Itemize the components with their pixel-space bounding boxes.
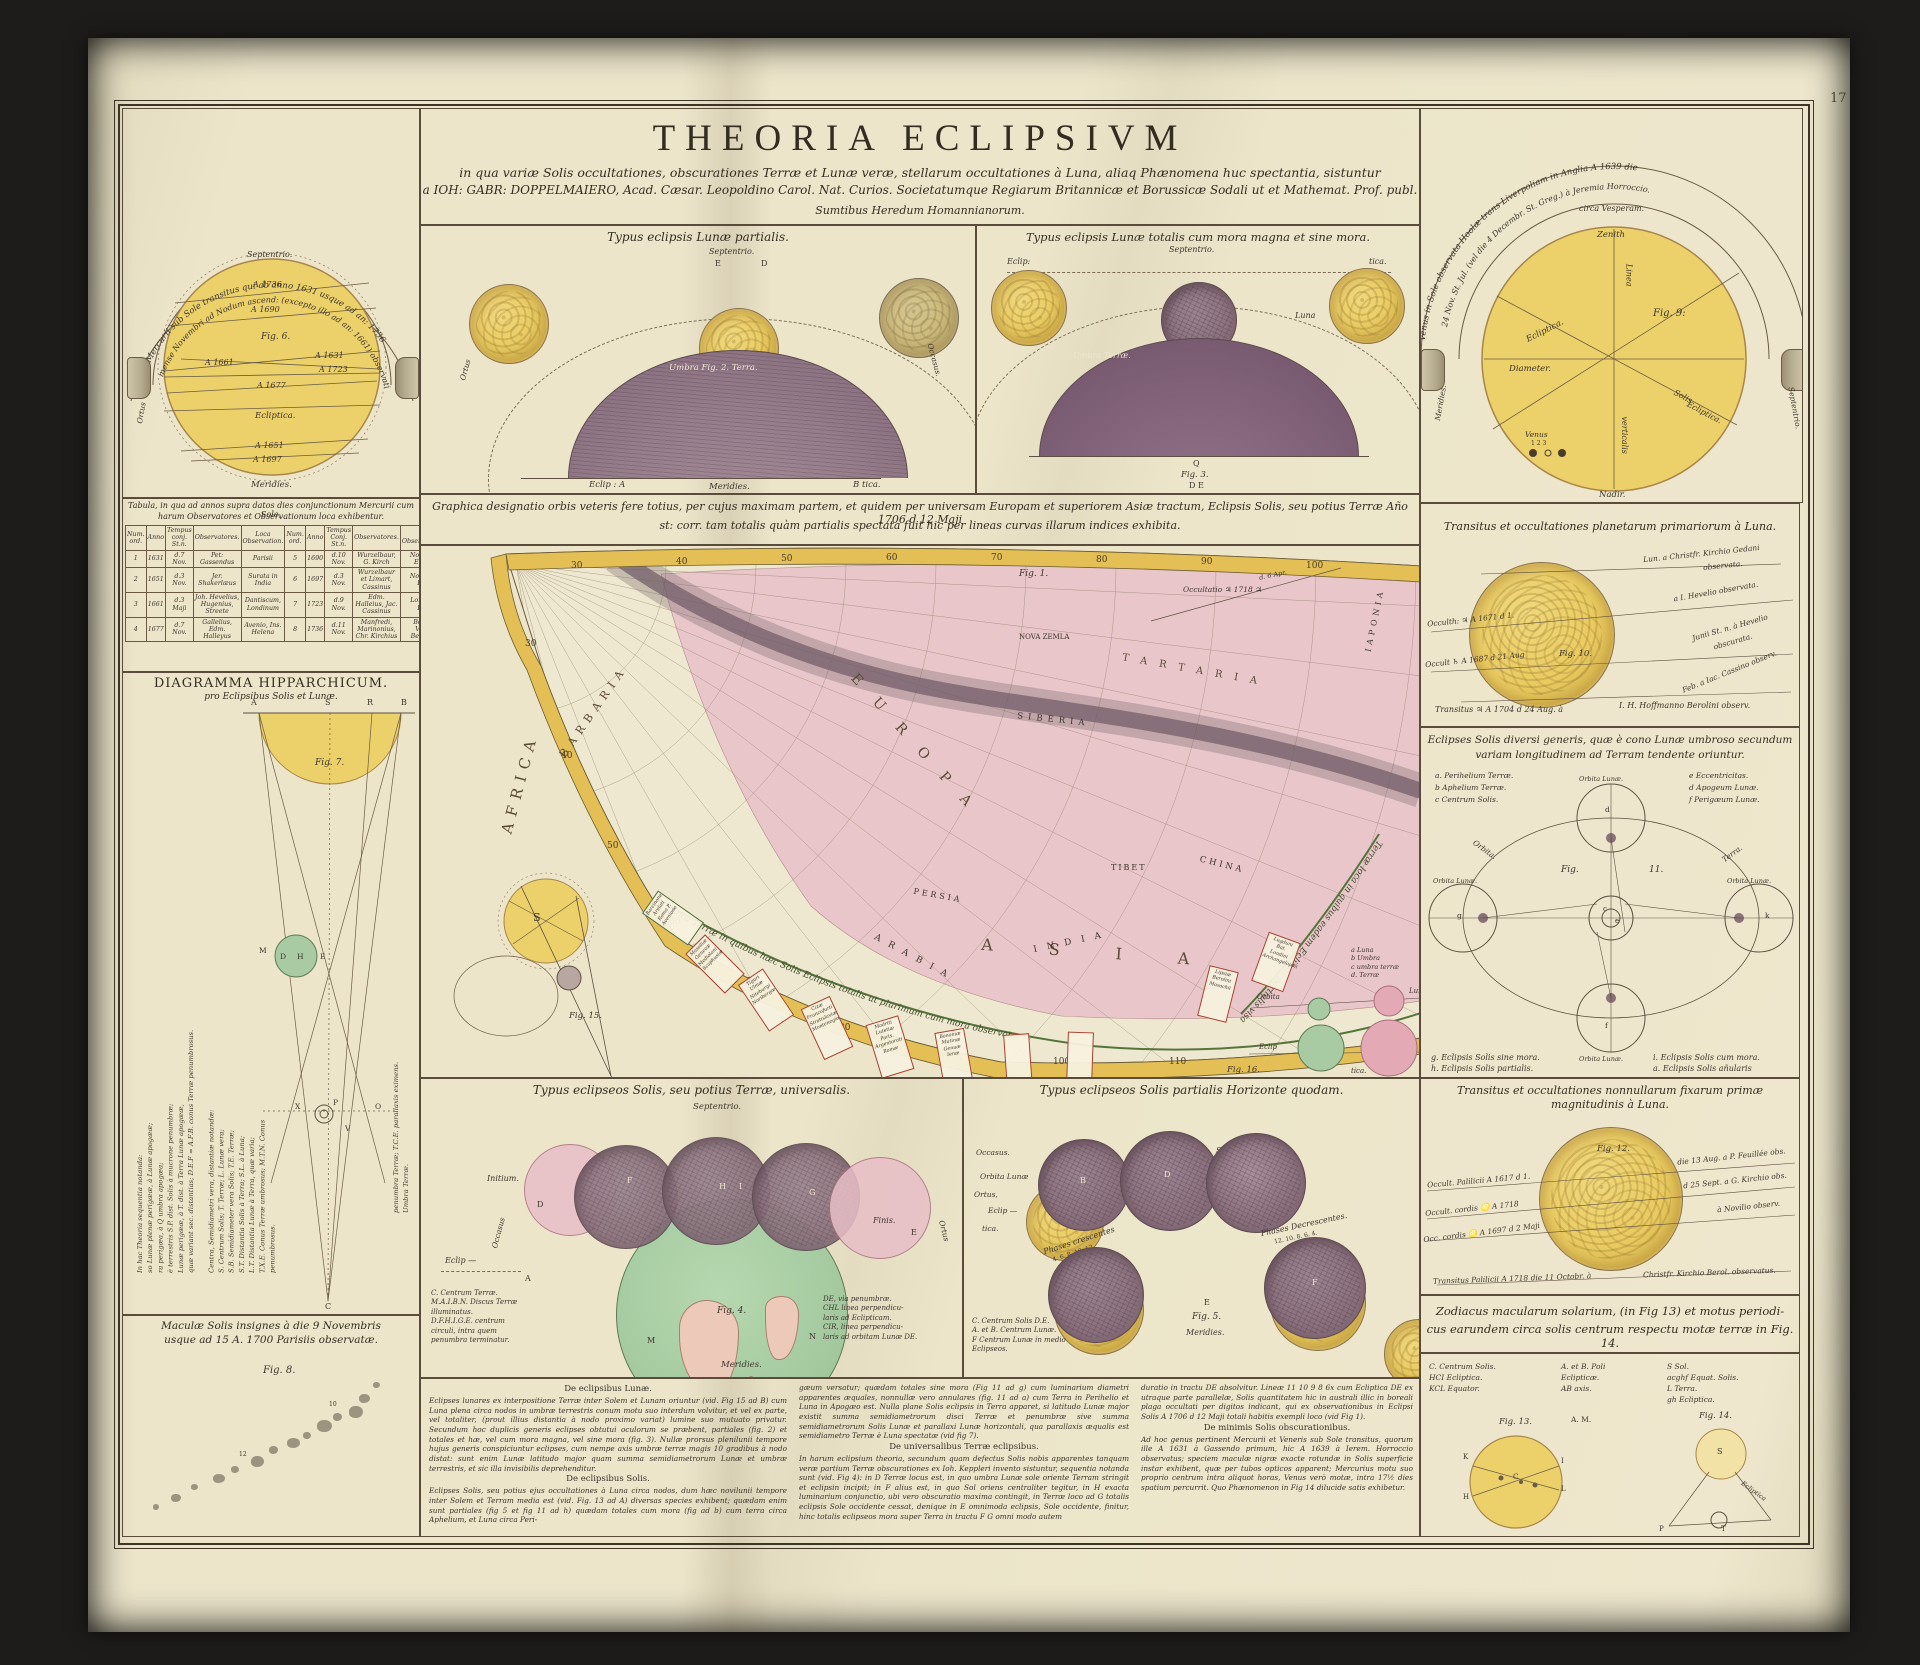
svg-text:90: 90 [1201,557,1213,567]
table-cell: 1736 [305,617,324,642]
plate-title: THEORIA ECLIPSIVM [421,117,1419,160]
label-d: D [280,953,286,961]
label-e: E [320,953,325,961]
star-paths [1421,1079,1800,1295]
table-cell: Londinum, Parisii [400,592,420,617]
map-occultation-note: Occultatio ♃ 1718 ♃ [1183,586,1262,594]
sunspot [251,1456,264,1467]
map-label-s: S [533,912,541,924]
svg-text:50: 50 [781,554,793,564]
label-venus: Venus [1525,431,1548,439]
city-box-empty [1003,1033,1033,1078]
table-cell: Wurzelbaur, G. Kirch [353,550,401,567]
svg-text:50: 50 [607,841,619,851]
label-fig6: Fig. 6. [261,333,290,342]
label-fig: Fig. [1561,866,1579,875]
label-d: D [1164,1171,1170,1179]
table-row: 21651d.3 Nov.Jer. ShakerlæusSurata in In… [126,568,421,593]
table-cell: d.3 Maji [166,592,194,617]
table-cell: Jer. Shakerlæus [193,568,241,593]
label-tica: tica. [1351,1068,1366,1075]
svg-text:30: 30 [571,561,583,571]
sunspot [231,1466,239,1473]
table-cell: 1690 [305,550,324,567]
table-caption-2: harum Observatores et Observationum loca… [123,512,419,521]
sunspot [303,1432,311,1439]
label-fig12: Fig. 12. [1597,1145,1630,1154]
table-cell: Manfredi, Marinonius, Chr. Kirchius [353,617,401,642]
label-s: S [325,699,330,707]
panel-lunar-partial: Typus eclipsis Lunæ partialis. Septentri… [420,225,976,494]
universal-legend-2: DE, via penumbræ. CHL linea perpendicu- … [823,1295,917,1342]
label-orbita-lunae: Orbita Lunæ. [1433,878,1477,885]
table-cell: 1631 [146,550,165,567]
label-h: H [719,1183,726,1191]
sunspot [213,1474,225,1483]
label-a1736: A 1736 [253,281,282,289]
label-meridies: Meridies. [251,481,292,490]
table-cell: 1677 [146,617,165,642]
label-h: H [1463,1494,1469,1501]
svg-text:30: 30 [525,639,537,649]
banner-scroll-right-icon [395,357,419,399]
map-caption-2: st: corr. tam totalis quàm partialis spe… [421,519,1419,532]
lunar-partial-header: Typus eclipsis Lunæ partialis. [421,230,975,244]
label-orbita-lunae: Orbita Lunæ. [1727,878,1771,885]
label-a1631: A 1631 [315,352,344,360]
col-header: Num. ord. [285,526,306,551]
label-meridies: Meridies. [709,483,750,492]
label-orbita-lunae: Orbita Lunæ. [1579,1056,1623,1063]
svg-text:40: 40 [676,557,688,567]
ecliptic-dashes [1007,272,1391,273]
map-label-tibet: TIBET [1111,864,1147,872]
panel-planet-occultations: Transitus et occultationes planetarum pr… [1420,503,1800,727]
moon-disc [991,270,1067,346]
label-linea: Linea [1624,264,1632,287]
sunspot [287,1438,300,1448]
table-cell: Noriberga, Parisii [400,568,420,593]
plate-imprint: Sumtibus Heredum Homannianorum. [421,204,1419,217]
banner-scroll-left-icon [127,357,151,399]
label-eclip-a: Eclip : A [589,481,625,490]
ecliptic-line [441,1271,521,1272]
heading-de-minimis: De minimis Solis obscurationibus. [1141,1423,1413,1434]
table-cell: d.7 Nov. [166,550,194,567]
label-f: F [1312,1279,1318,1287]
conjunction-table: Num. ord. Anno Tempus conj. St.n. Observ… [125,525,420,642]
label-k: K [1463,1454,1468,1461]
label-c: c [1603,906,1607,913]
label-de: D E [1189,482,1204,490]
panel-solar-eclipse-types: Eclipses Solis diversi generis, quæ è co… [1420,727,1800,1078]
heading-de-eclipsibus-solis: De eclipsibus Solis. [429,1474,787,1485]
label-l: L [1561,1486,1566,1493]
label-b: B [1080,1177,1086,1185]
col-header: Observatores. [353,526,401,551]
label-septentrio: Septentrio. [693,1103,741,1112]
label-septentrio: Septentrio. [1169,246,1214,254]
label-m: M [647,1337,655,1345]
panel-sunspots: Maculæ Solis insignes à die 9 Novembris … [122,1315,420,1537]
svg-text:70: 70 [991,553,1003,563]
label-v: V [345,1125,350,1133]
label-orbita: Orbita [1257,994,1280,1001]
panel-map-caption: Graphica designatio orbis veteris fere t… [420,494,1420,545]
label-f: f [1605,1022,1608,1030]
sunspot [359,1394,370,1403]
panel-horizon-eclipse: Typus eclipseos Solis partialis Horizont… [963,1078,1420,1378]
label-umbra-terrae: Umbra Terræ. [1073,352,1131,360]
label-fig8: Fig. 8. [263,1366,295,1377]
label-occasus: Occasus. [976,1149,1010,1157]
sun-s-figure [498,873,594,969]
table-cell: 8 [285,617,306,642]
label-f: F [627,1177,633,1185]
universal-header: Typus eclipseos Solis, seu potius Terræ,… [421,1083,962,1097]
svg-text:60: 60 [886,553,898,563]
label-a: A [525,1275,531,1283]
label-d: D [761,260,767,268]
col-header: Anno [146,526,165,551]
caption-a: a. Eclipsis Solis añularis [1653,1065,1752,1073]
label-eclip: Eclip [1259,1044,1277,1051]
panel-zodiacus-header: Zodiacus macularum solarium, (in Fig 13)… [1420,1295,1800,1353]
panel-mercury-table: Tabula, in qua ad annos supra datos dies… [122,498,420,672]
table-cell: Surata in India [241,568,285,593]
label-e: E [715,260,721,268]
table-cell: 1723 [305,592,324,617]
occ-label-bottom-2: I. H. Hoffmanno Berolini observ. [1619,702,1750,710]
label-a1661: A 1661 [205,359,234,367]
table-cell: 4 [126,617,147,642]
label-a1677: A 1677 [257,382,286,390]
sunspot-number: 12 [239,1452,247,1458]
sunspot [269,1446,278,1454]
table-cell: 6 [285,568,306,593]
table-body: 11631d.7 Nov.Pet: GassendusParisii51690d… [126,550,421,642]
text-column-1: De eclipsibus Lunæ. Eclipses lunares ex … [429,1383,787,1525]
sunspot [153,1504,159,1510]
sunspot [317,1420,332,1432]
label-a1651: A 1651 [255,442,284,450]
table-cell: 3 [126,592,147,617]
label-a1723: A 1723 [319,366,348,374]
label-umbra-terra: Umbra Fig. 2. Terra. [669,364,758,373]
table-cell: 1 [126,550,147,567]
panel-hipparchic-diagram: DIAGRAMMA HIPPARCHICUM. pro Eclipsibus S… [122,672,420,1315]
maculae-caption-2: usque ad 15 A. 1700 Parisiis observatæ. [123,1334,419,1346]
panel-mercury-transits: Octo Mercurii sub Sole transitus qui ab … [122,108,420,498]
label-ortus: Ortus [937,1220,950,1243]
label-fig16: Fig. 16. [1227,1066,1260,1075]
label-t: T [1721,1526,1726,1533]
hipparchic-side-text-right: penumbra Terræ; T.C.E. parallaxis eximen… [391,793,415,1213]
label-occasus: Occasus [491,1217,507,1250]
text-column-2: gæum versatur; quædam totales sine mora … [799,1383,1129,1521]
label-eclip: Eclip — [988,1207,1017,1215]
col-header: Anno [305,526,324,551]
maculae-caption-1: Maculæ Solis insignes à die 9 Novembris [123,1320,419,1332]
panel-treatise-text: De eclipsibus Lunæ. Eclipses lunares ex … [420,1378,1420,1537]
fig16-legend: a Luna b Umbra c umbra terræ d. Terræ [1351,946,1399,980]
label-a: A [251,699,257,707]
label-initium: Initium. [487,1175,519,1183]
baseline [1029,456,1369,457]
label-eclip: Eclip — [445,1257,476,1265]
paragraph-duratio: duratio in tractu DE absolvitur. Lineæ 1… [1141,1383,1413,1421]
panel-lunar-total: Typus eclipsis Lunæ totalis cum mora mag… [976,225,1420,494]
label-i: I [739,1183,742,1191]
table-cell: Wurzelbaur et Limart, Cassinus [353,568,401,593]
label-a1697: A 1697 [253,456,282,464]
penumbra-finis [829,1157,931,1259]
label-r: R [367,699,373,707]
label-fig9: Fig. 9: [1653,309,1686,320]
label-e: E [911,1229,917,1237]
label-fig14: Fig. 14. [1699,1412,1732,1421]
label-g: g [1457,912,1462,920]
page-number: 17 [1830,92,1847,106]
moon-disc-streak [1206,1133,1306,1233]
col-header: Tempus conj. St.n. [166,526,194,551]
paragraph-minimis: Ad hoc genus pertinent Mercurii et Vener… [1141,1435,1413,1492]
label-fig-number: 11. [1649,866,1663,875]
label-fig4: Fig. 4. [717,1307,746,1316]
zodiacus-diagrams [1421,1354,1800,1537]
caption-i: i. Eclipsis Solis cum mora. [1653,1054,1760,1062]
label-orbita-lunae: Orbita Lunæ. [1579,776,1623,783]
table-row: 31661d.3 MajiJoh. Hevelius, Hugenius, St… [126,592,421,617]
label-verticalis: verticalis [1619,417,1627,454]
lunar-total-header: Typus eclipsis Lunæ totalis cum mora mag… [977,230,1419,244]
plate-subtitle-1: in qua variæ Solis occultationes, obscur… [421,165,1419,180]
label-circa-vesperam: circa Vesperam. [1579,205,1644,213]
city-box-empty [1066,1032,1094,1078]
col-header: Loca Observation. [241,526,285,551]
paragraph-universalibus: In harum eclipsium theoria, secundum qua… [799,1454,1129,1521]
paragraph-lunae: Eclipses lunares ex interpositione Terræ… [429,1396,787,1472]
label-fig10: Fig. 10. [1559,650,1592,659]
sunspot [333,1413,342,1421]
label-m: M [259,947,267,955]
panel-venus-transit: Venus in Sole observata Hoolæ trans Live… [1420,108,1803,503]
sunspot-number: 10 [329,1402,337,1408]
table-row: 41677d.7 Nov.Gallelius, Edm. HalleyusAve… [126,617,421,642]
mercury-diagram: Octo Mercurii sub Sole transitus qui ab … [123,109,420,498]
sunspot [373,1382,380,1388]
caption-h: h. Eclipsis Solis partialis. [1431,1065,1533,1073]
table-cell: Noriberga, Erfordia [400,550,420,567]
panel-universal-eclipse: Typus eclipseos Solis, seu potius Terræ,… [420,1078,963,1378]
table-cell: Gallelius, Edm. Halleyus [193,617,241,642]
label-d: d [1605,806,1610,814]
label-i: I [1561,1458,1564,1465]
label-eclip: Eclip: [1007,258,1030,266]
label-fig15: Fig. 15. [569,1012,602,1021]
label-septentrio: Septentrio. [709,248,754,256]
label-fig7: Fig. 7. [315,759,344,768]
sunspot [191,1484,198,1490]
label-nadir: Nadir. [1599,491,1626,500]
label-venus-digits: 1 2 3 [1531,441,1546,447]
table-cell: d.3 Nov. [166,568,194,593]
moon-disc [1120,1131,1220,1231]
svg-text:110: 110 [1169,1057,1186,1067]
svg-text:80: 80 [1096,555,1108,565]
photographed-atlas-plate: 17 Octo Mercurii sub Sole transitus qui … [0,0,1920,1665]
svg-text:100: 100 [1306,561,1323,571]
universal-legend-1: C. Centrum Terræ. M.A.I.B.N. Discus Terr… [431,1289,517,1346]
label-zenith: Zenith [1597,231,1625,240]
panel-star-occultations: Transitus et occultationes nonnullarum f… [1420,1078,1800,1295]
label-fig5: Fig. 5. [1192,1313,1221,1322]
panel-title: THEORIA ECLIPSIVM in qua variæ Solis occ… [420,108,1420,225]
table-cell: d.9 Nov. [325,592,353,617]
col-header: Observatores. [193,526,241,551]
label-lun: Lun. [1409,988,1420,995]
label-tica: tica. [982,1225,998,1233]
label-ortus: Ortus, [974,1191,998,1199]
label-meridies: Meridies. [1186,1329,1224,1337]
col-header: Num. ord. [126,526,147,551]
zodiacus-header-2: cus earundem circa solis centrum respect… [1421,1322,1799,1350]
sun-corner-disc [1384,1319,1420,1378]
label-k: k [1765,912,1770,920]
sunspot [171,1494,181,1502]
table-cell: 5 [285,550,306,567]
india-shape [765,1296,799,1360]
venus-diagram: Venus in Sole observata Hoolæ trans Live… [1421,109,1803,503]
paragraph-solis: Eclipses Solis, seu potius ejus occultat… [429,1486,787,1524]
label-diameter: Diameter. [1509,365,1551,374]
table-cell: d.10 Nov. [325,550,353,567]
text-column-3: duratio in tractu DE absolvitur. Lineæ 1… [1141,1383,1413,1492]
label-ecliptica: Ecliptica. [255,412,296,421]
label-c: C [325,1303,331,1311]
banner-scroll-right-icon [1781,349,1803,391]
label-fig1: Fig. 1. [1019,570,1048,579]
label-fig3: Fig. 3. [1181,471,1209,480]
label-p: P [1659,1526,1664,1533]
heading-de-universalibus: De universalibus Terræ eclipsibus. [799,1442,1129,1453]
label-s: S [1717,1448,1722,1456]
label-tica: tica. [1369,258,1387,266]
label-b-tica: B tica. [853,481,881,490]
horizon-legend: C. Centrum Solis D.E. A. et B. Centrum L… [972,1317,1066,1355]
table-cell: Parisii [241,550,285,567]
moon-disc [469,284,549,364]
label-d: D [537,1201,543,1209]
table-cell: 1661 [146,592,165,617]
table-cell: 1697 [305,568,324,593]
baseline [521,478,881,479]
label-orbita-lunae: Orbita Lunæ [980,1173,1029,1181]
table-cell: d.7 Nov. [166,617,194,642]
sunspot [349,1406,363,1418]
label-septentrio: Septentrio. [247,251,292,259]
label-n: N [809,1333,816,1341]
col-header: Tempus Conj. St.n. [325,526,353,551]
label-ortus: Ortus [459,359,472,382]
table-cell: d.11 Nov. [325,617,353,642]
col-header: Loca Observationum. [400,526,420,551]
label-q: Q [1193,460,1200,468]
table-cell: 2 [126,568,147,593]
label-finis: Finis. [873,1217,895,1225]
label-o: O [375,1103,381,1111]
panel-zodiacus-figures: C. Centrum Solis. HCI Ecliptica. KCL Equ… [1420,1353,1800,1537]
label-meridies: Meridies. [721,1361,762,1370]
label-a1690: A 1690 [251,306,280,314]
table-cell: Joh. Hevelius, Hugenius, Streete [193,592,241,617]
paragraph-solis-cont: gæum versatur; quædam totales sine mora … [799,1383,1129,1440]
moon-disc-shaded [879,278,959,358]
moon-disc [1329,268,1405,344]
label-h: H [297,953,304,961]
caption-g: g. Eclipsis Solis sine mora. [1431,1054,1540,1062]
plate-subtitle-2: a IOH: GABR: DOPPELMAIERO, Acad. Cæsar. … [421,183,1419,197]
label-g: G [809,1189,815,1197]
label-e: E [1204,1299,1210,1307]
table-cell: d.3 Nov. [325,568,353,593]
table-cell: 7 [285,592,306,617]
hipparchic-side-text: In hac Theoria sequentia notanda: so Lun… [135,753,243,1273]
label-e: e [1615,918,1619,925]
table-cell: Dantiscum, Londinum [241,592,285,617]
zodiacus-header-1: Zodiacus macularum solarium, (in Fig 13)… [1421,1304,1799,1318]
table-cell: Avenio, Ins. Helena [241,617,285,642]
table-cell: Edm. Halleius, Jac. Cassinus [353,592,401,617]
label-p: P [333,1099,338,1107]
map-label-nova-zemla: NOVA ZEMLA [1019,634,1069,641]
horizon-header: Typus eclipseos Solis partialis Horizont… [964,1083,1419,1097]
panel-eclipse-map: Loca Terræ in quibus hæc Solis Eclipsis … [420,545,1420,1078]
table-cell: Bononia, Vienna, Berolinum [400,617,420,642]
moon-over-sun [1264,1237,1366,1339]
label-luna: Luna [1295,312,1315,320]
label-b: B [401,699,407,707]
label-c: C [1513,1474,1518,1481]
table-cell: Pet: Gassendus [193,550,241,567]
label-x: X [295,1103,300,1111]
table-cell: 1651 [146,568,165,593]
heading-de-eclipsibus-lunae: De eclipsibus Lunæ. [429,1384,787,1395]
table-row: 11631d.7 Nov.Pet: GassendusParisii51690d… [126,550,421,567]
occ-label-bottom-1: Transitus ♃ A 1704 d 24 Aug. à [1435,706,1563,714]
